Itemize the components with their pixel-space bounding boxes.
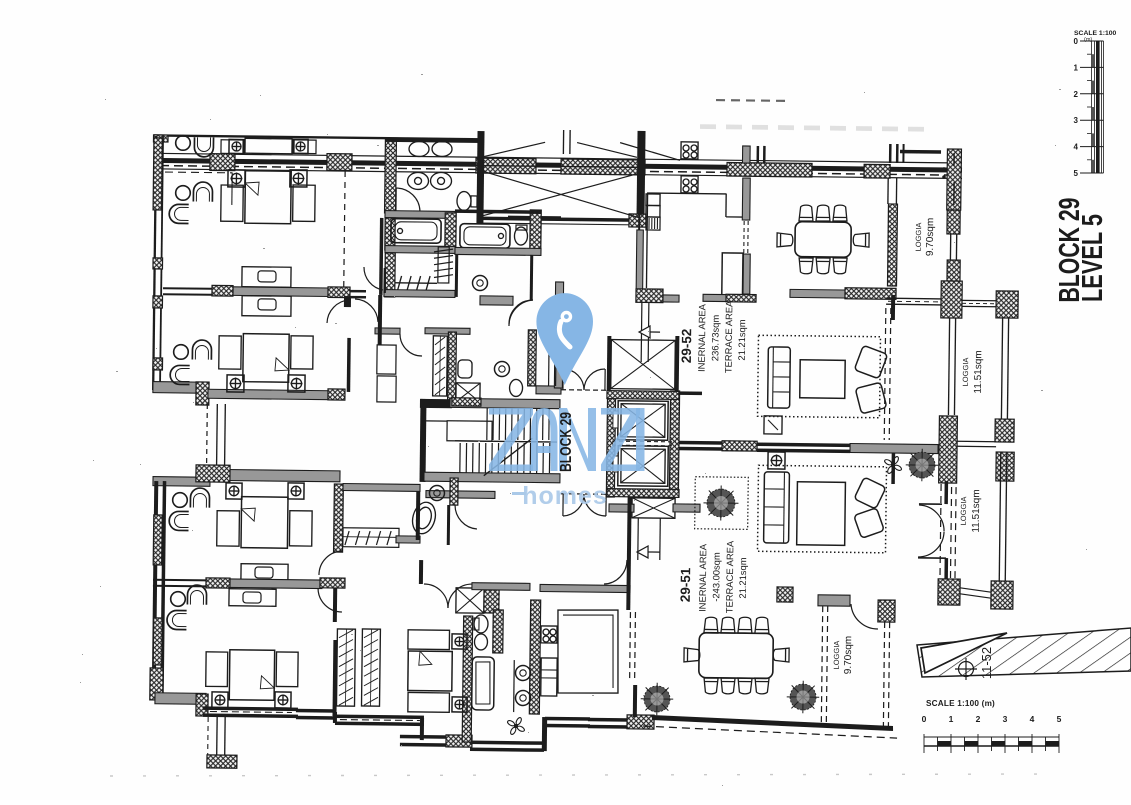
svg-text:2: 2	[1074, 90, 1079, 99]
svg-text:9.70sqm: 9.70sqm	[925, 218, 936, 256]
svg-text:5: 5	[1057, 714, 1062, 724]
svg-text:LOGGIA: LOGGIA	[914, 223, 923, 252]
svg-text:0: 0	[922, 714, 927, 724]
svg-text:9.70sqm: 9.70sqm	[843, 636, 854, 674]
svg-text:21.21sqm: 21.21sqm	[737, 557, 748, 598]
svg-text:TERRACE AREA: TERRACE AREA	[723, 300, 735, 373]
svg-text:LOGGIA: LOGGIA	[961, 358, 970, 387]
svg-text:2: 2	[976, 714, 981, 724]
svg-text:3: 3	[1003, 714, 1008, 724]
svg-text:11.51sqm: 11.51sqm	[973, 350, 985, 393]
svg-text:LEVEL 5: LEVEL 5	[1077, 214, 1109, 302]
svg-text:29-51: 29-51	[678, 567, 693, 602]
svg-text:11.51sqm: 11.51sqm	[971, 489, 983, 532]
svg-text:SCALE 1:100: SCALE 1:100	[1074, 30, 1117, 37]
svg-text:BLOCK 29: BLOCK 29	[558, 412, 575, 472]
svg-text:SCALE 1:100 (m): SCALE 1:100 (m)	[926, 699, 995, 708]
svg-text:0: 0	[1074, 37, 1079, 46]
svg-text:11-52: 11-52	[979, 647, 994, 679]
svg-text:4: 4	[1030, 714, 1035, 724]
svg-text:1: 1	[949, 714, 954, 724]
svg-text:5: 5	[1074, 169, 1079, 178]
svg-text:homes: homes	[522, 482, 608, 510]
svg-text:236.73sqm: 236.73sqm	[709, 315, 721, 362]
svg-text:INERNAL AREA: INERNAL AREA	[697, 543, 709, 612]
svg-text:21.21sqm: 21.21sqm	[736, 319, 747, 360]
svg-text:4: 4	[1074, 143, 1079, 152]
svg-text:29-52: 29-52	[679, 329, 694, 364]
svg-text:LOGGIA: LOGGIA	[959, 497, 968, 526]
svg-text:INERNAL AREA: INERNAL AREA	[696, 303, 708, 372]
svg-text:1: 1	[1074, 63, 1079, 72]
svg-text:3: 3	[1074, 116, 1079, 125]
svg-text:-243.00sqm: -243.00sqm	[710, 552, 722, 602]
svg-text:LOGGIA: LOGGIA	[832, 641, 841, 670]
svg-text:TERRACE AREA: TERRACE AREA	[724, 540, 736, 613]
